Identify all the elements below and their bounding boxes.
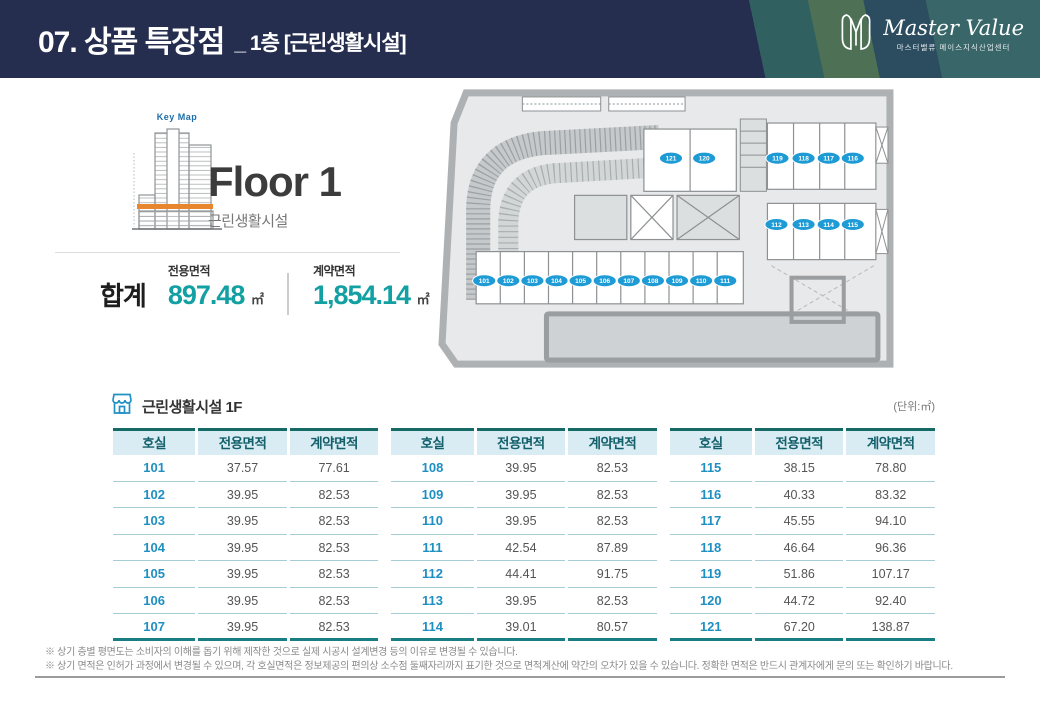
brand-subtitle: 마스터밸류 메이스지식산업센터	[897, 42, 1011, 53]
exclusive-area-label: 전용면적	[168, 262, 263, 279]
table-group: 호실115116117118119120121전용면적38.1540.3345.…	[670, 428, 935, 641]
unit-badge-number: 104	[551, 278, 562, 285]
storefront-icon	[110, 392, 134, 420]
page-title-sub: _ 1층 [근린생활시설]	[234, 21, 405, 57]
area-value: 45.55	[755, 508, 844, 535]
room-number: 107	[113, 614, 195, 641]
contract-area-metric: 계약면적 1,854.14 ㎡	[313, 262, 429, 315]
column-header: 계약면적	[290, 428, 379, 455]
column-header: 전용면적	[477, 428, 566, 455]
area-value: 39.95	[198, 614, 287, 641]
footnote-line: ※ 상기 층별 평면도는 소비자의 이해를 돕기 위해 제작한 것으로 실제 시…	[45, 646, 953, 660]
unit-badge-number: 114	[823, 222, 834, 229]
room-number: 108	[391, 455, 473, 482]
table-column: 호실115116117118119120121	[670, 428, 752, 641]
room-number: 110	[391, 508, 473, 535]
room-number: 101	[113, 455, 195, 482]
area-value: 82.53	[568, 588, 657, 615]
header-bar: 07. 상품 특장점 _ 1층 [근린생활시설] Master Value 마스…	[0, 0, 1040, 78]
table-group: 호실108109110111112113114전용면적39.9539.9539.…	[391, 428, 656, 641]
area-totals: 합계 전용면적 897.48 ㎡ 계약면적 1,854.14 ㎡	[100, 262, 429, 315]
unit-badge-number: 102	[503, 278, 514, 285]
table-column: 계약면적82.5382.5382.5387.8991.7582.5380.57	[568, 428, 657, 641]
area-value: 39.95	[198, 588, 287, 615]
table-group: 호실101102103104105106107전용면적37.5739.9539.…	[113, 428, 378, 641]
room-number: 116	[670, 482, 752, 509]
room-number: 103	[113, 508, 195, 535]
core-block	[575, 195, 740, 239]
column-header: 계약면적	[846, 428, 935, 455]
unit-badge-number: 110	[696, 278, 707, 285]
room-number: 112	[391, 561, 473, 588]
area-value: 107.17	[846, 561, 935, 588]
area-value: 44.72	[755, 588, 844, 615]
area-value: 67.20	[755, 614, 844, 641]
table-column: 호실108109110111112113114	[391, 428, 473, 641]
area-value: 39.01	[477, 614, 566, 641]
metric-divider	[287, 273, 289, 315]
unit-cluster-c	[767, 203, 875, 259]
unit-badge-number: 101	[479, 278, 490, 285]
unit-badge-number: 107	[623, 278, 634, 285]
area-value: 91.75	[568, 561, 657, 588]
stair-core	[740, 119, 766, 191]
area-value: 39.95	[198, 561, 287, 588]
table-column: 계약면적78.8083.3294.1096.36107.1792.40138.8…	[846, 428, 935, 641]
area-value: 39.95	[477, 508, 566, 535]
area-value: 82.53	[290, 535, 379, 562]
unit-badge-number: 116	[848, 156, 859, 163]
area-value: 82.53	[290, 614, 379, 641]
unit-badge-number: 120	[699, 156, 710, 163]
room-number: 114	[391, 614, 473, 641]
unit-badge-number: 109	[672, 278, 683, 285]
room-number: 115	[670, 455, 752, 482]
area-value: 46.64	[755, 535, 844, 562]
unit-badge-number: 103	[527, 278, 538, 285]
area-value: 39.95	[477, 588, 566, 615]
column-header: 전용면적	[755, 428, 844, 455]
area-value: 138.87	[846, 614, 935, 641]
area-value: 82.53	[290, 482, 379, 509]
unit-badge-number: 115	[848, 222, 859, 229]
area-value: 37.57	[198, 455, 287, 482]
area-value: 39.95	[198, 482, 287, 509]
page-title-main: 07. 상품 특장점	[38, 17, 224, 61]
floor-plan: 1011021031041051061071081091101111121131…	[438, 86, 900, 374]
unit-badge-number: 111	[720, 278, 731, 285]
unit-badge-number: 106	[599, 278, 610, 285]
room-number: 109	[391, 482, 473, 509]
bottom-rule	[35, 676, 1005, 678]
area-value: 87.89	[568, 535, 657, 562]
area-value: 39.95	[198, 508, 287, 535]
room-number: 105	[113, 561, 195, 588]
area-value: 42.54	[477, 535, 566, 562]
area-value: 82.53	[290, 508, 379, 535]
room-number: 119	[670, 561, 752, 588]
unit-sqm: ㎡	[417, 292, 429, 307]
unit-badge-number: 108	[647, 278, 658, 285]
area-value: 96.36	[846, 535, 935, 562]
unit-cluster-a	[644, 129, 736, 191]
floor1-highlight-band	[137, 204, 213, 209]
area-value: 82.53	[568, 508, 657, 535]
area-value: 77.61	[290, 455, 379, 482]
table-column: 전용면적38.1540.3345.5546.6451.8644.7267.20	[755, 428, 844, 641]
area-value: 44.41	[477, 561, 566, 588]
total-label: 합계	[100, 276, 146, 315]
table-column: 전용면적39.9539.9539.9542.5444.4139.9539.01	[477, 428, 566, 641]
area-value: 83.32	[846, 482, 935, 509]
room-number: 118	[670, 535, 752, 562]
area-value: 40.33	[755, 482, 844, 509]
area-value: 94.10	[846, 508, 935, 535]
room-number: 113	[391, 588, 473, 615]
table-section-title: 근린생활시설 1F	[142, 396, 242, 417]
room-number: 120	[670, 588, 752, 615]
key-map-label: Key Map	[122, 112, 232, 122]
brand-logo: Master Value 마스터밸류 메이스지식산업센터	[839, 9, 1024, 60]
contract-area-label: 계약면적	[313, 262, 429, 279]
area-value: 51.86	[755, 561, 844, 588]
unit-sqm: ㎡	[251, 292, 263, 307]
divider-line	[55, 252, 400, 253]
unit-badge-number: 121	[666, 156, 677, 163]
table-column: 호실101102103104105106107	[113, 428, 195, 641]
column-header: 호실	[391, 428, 473, 455]
brand-name: Master Value	[883, 16, 1024, 40]
footnote-line: ※ 상기 면적은 인허가 과정에서 변경될 수 있으며, 각 호실면적은 정보제…	[45, 660, 953, 674]
unit-note: (단위:㎡)	[893, 398, 935, 414]
room-number: 121	[670, 614, 752, 641]
unit-badge-number: 119	[772, 156, 783, 163]
area-value: 82.53	[290, 561, 379, 588]
unit-badge-number: 117	[823, 156, 834, 163]
unit-badge-number: 105	[575, 278, 586, 285]
contract-area-value: 1,854.14 ㎡	[313, 280, 429, 315]
table-column: 계약면적77.6182.5382.5382.5382.5382.5382.53	[290, 428, 379, 641]
area-value: 78.80	[846, 455, 935, 482]
room-number: 117	[670, 508, 752, 535]
floor-subtitle: 근린생활시설	[208, 210, 341, 231]
slide-page: 07. 상품 특장점 _ 1층 [근린생활시설] Master Value 마스…	[0, 0, 1040, 720]
column-header: 호실	[113, 428, 195, 455]
floor-heading: Floor 1 근린생활시설	[208, 158, 341, 231]
area-value: 39.95	[477, 482, 566, 509]
room-number: 111	[391, 535, 473, 562]
column-header: 전용면적	[198, 428, 287, 455]
unit-badge-number: 118	[798, 156, 809, 163]
monogram-icon	[839, 9, 873, 60]
area-table: 호실101102103104105106107전용면적37.5739.9539.…	[113, 428, 935, 641]
area-value: 80.57	[568, 614, 657, 641]
floor-title: Floor 1	[208, 158, 341, 206]
room-number: 104	[113, 535, 195, 562]
building-elevation-sketch	[127, 234, 227, 251]
unit-badge-number: 113	[798, 222, 809, 229]
room-number: 102	[113, 482, 195, 509]
area-value: 82.53	[290, 588, 379, 615]
table-title-row: 근린생활시설 1F (단위:㎡)	[110, 392, 935, 420]
area-value: 38.15	[755, 455, 844, 482]
area-value: 39.95	[198, 535, 287, 562]
exclusive-area-metric: 전용면적 897.48 ㎡	[168, 262, 263, 315]
unit-badge-number: 112	[771, 222, 782, 229]
area-value: 82.53	[568, 455, 657, 482]
area-value: 82.53	[568, 482, 657, 509]
footnotes: ※ 상기 층별 평면도는 소비자의 이해를 돕기 위해 제작한 것으로 실제 시…	[45, 646, 953, 673]
column-header: 계약면적	[568, 428, 657, 455]
column-header: 호실	[670, 428, 752, 455]
area-value: 39.95	[477, 455, 566, 482]
room-number: 106	[113, 588, 195, 615]
table-column: 전용면적37.5739.9539.9539.9539.9539.9539.95	[198, 428, 287, 641]
area-value: 92.40	[846, 588, 935, 615]
page-title: 07. 상품 특장점 _ 1층 [근린생활시설]	[38, 0, 406, 78]
exclusive-area-value: 897.48 ㎡	[168, 280, 263, 315]
